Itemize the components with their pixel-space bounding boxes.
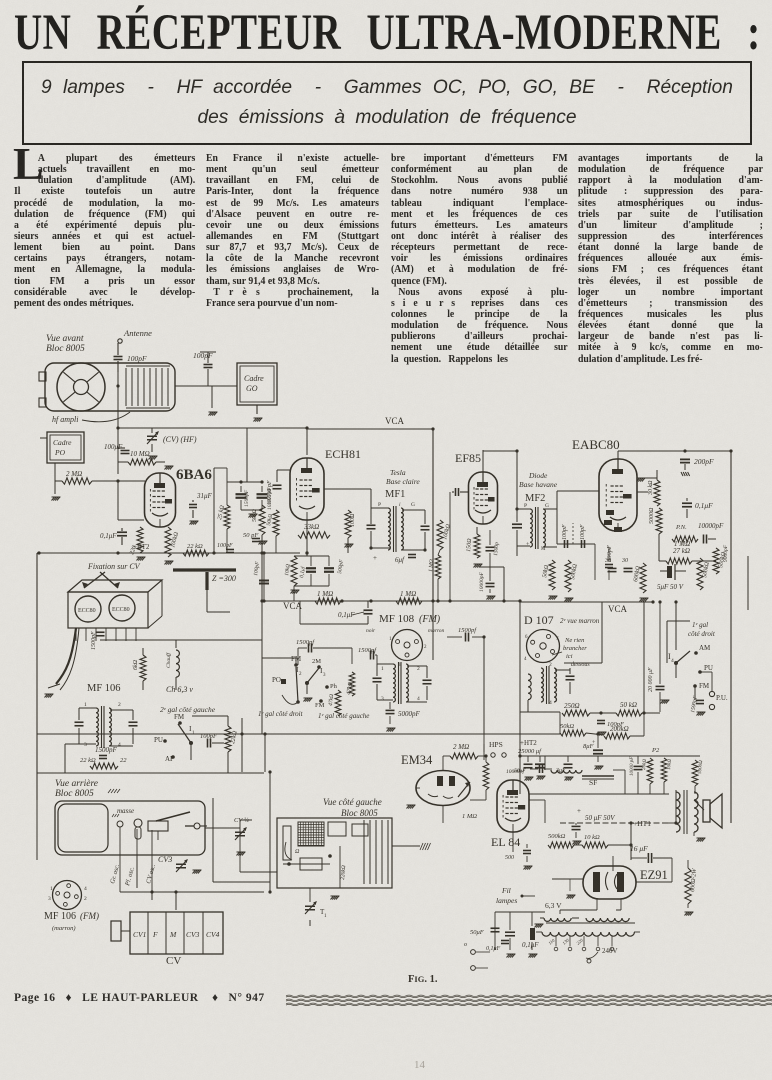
svg-text:100kΩ: 100kΩ [442, 523, 452, 541]
svg-text:6,3 V: 6,3 V [545, 901, 562, 910]
svg-text:noir: noir [366, 628, 376, 634]
svg-text:2: 2 [549, 662, 552, 668]
svg-text:100Ω: 100Ω [350, 513, 356, 527]
svg-text:(FM): (FM) [80, 911, 99, 921]
svg-text:10000 pF: 10000 pF [630, 756, 635, 776]
svg-text:100pF: 100pF [127, 354, 147, 363]
svg-text:côté droit: côté droit [688, 630, 716, 638]
svg-text:1 MΩ: 1 MΩ [400, 590, 416, 598]
svg-text:47kΩ: 47kΩ [327, 694, 335, 707]
svg-text:Fil: Fil [501, 886, 511, 895]
svg-text:100pF: 100pF [562, 524, 568, 540]
svg-text:6BA6: 6BA6 [176, 467, 212, 483]
svg-text:VCA: VCA [385, 416, 405, 426]
svg-text:22: 22 [120, 757, 127, 764]
svg-text:hf ampli: hf ampli [52, 415, 78, 424]
svg-text:Pl. osc.: Pl. osc. [124, 866, 136, 888]
svg-text:500kΩ: 500kΩ [702, 561, 711, 578]
svg-text:+: + [592, 740, 596, 746]
svg-text:5000Ω: 5000Ω [698, 760, 704, 774]
svg-text:+: + [577, 807, 581, 815]
svg-text:2ᵉ gal côté gauche: 2ᵉ gal côté gauche [160, 705, 216, 714]
svg-text:ECC80: ECC80 [78, 608, 96, 614]
svg-text:PO: PO [54, 448, 66, 457]
svg-text:0,1μf: 0,1μf [298, 565, 307, 578]
svg-text:FM: FM [699, 682, 710, 690]
svg-text:AM: AM [699, 644, 711, 652]
svg-text:50kΩ: 50kΩ [266, 514, 274, 527]
svg-text:130: 130 [561, 937, 570, 946]
svg-text:2: 2 [424, 645, 427, 650]
svg-text:1 MΩ: 1 MΩ [428, 559, 435, 572]
svg-text:1ᵉ gal côté droit: 1ᵉ gal côté droit [258, 710, 304, 718]
svg-text:+: + [373, 554, 377, 562]
svg-text:27 kΩ: 27 kΩ [673, 547, 690, 555]
svg-text:2: 2 [417, 666, 420, 672]
svg-text:+BT2: +BT2 [133, 543, 150, 551]
svg-text:FM: FM [315, 702, 325, 709]
svg-text:10.000 pF: 10.000 pF [267, 480, 273, 505]
svg-text:5μF: 5μF [657, 583, 669, 591]
svg-text:50 V: 50 V [670, 583, 684, 591]
svg-text:3: 3 [84, 742, 87, 748]
svg-text:0,1μF: 0,1μF [522, 941, 539, 949]
svg-text:5000pF: 5000pF [398, 710, 421, 718]
svg-text:Tesla: Tesla [390, 468, 406, 477]
svg-text:50 kΩ: 50 kΩ [620, 701, 637, 709]
svg-text:ici: ici [566, 653, 573, 660]
svg-text:5000Ω: 5000Ω [649, 507, 655, 524]
svg-text:GO: GO [246, 384, 258, 393]
svg-text:CV4: CV4 [206, 930, 220, 939]
svg-text:(marron): (marron) [52, 925, 76, 932]
svg-text:Bloc 8005: Bloc 8005 [341, 808, 378, 818]
svg-text:1500pF: 1500pF [91, 631, 97, 650]
svg-text:220: 220 [575, 937, 584, 946]
svg-text:200kΩ: 200kΩ [610, 725, 629, 733]
svg-text:EF85: EF85 [455, 451, 481, 465]
svg-text:CV3: CV3 [186, 930, 200, 939]
svg-text:3: 3 [48, 896, 51, 902]
svg-text:MF1: MF1 [385, 489, 405, 500]
svg-text:Gr. osc.: Gr. osc. [109, 863, 121, 885]
svg-text:3: 3 [381, 696, 384, 702]
svg-text:100pF: 100pF [580, 524, 586, 540]
svg-text:Chauff: Chauff [165, 652, 172, 668]
svg-text:F: F [152, 930, 158, 939]
svg-text:M: M [541, 547, 546, 552]
svg-text:1ᵉ gal: 1ᵉ gal [692, 621, 708, 629]
svg-text:PO: PO [272, 676, 281, 684]
svg-text:500kΩ: 500kΩ [570, 563, 579, 580]
svg-text:EL 84: EL 84 [491, 835, 520, 849]
svg-text:Cadre: Cadre [53, 438, 72, 447]
svg-text:22kΩ: 22kΩ [230, 730, 239, 745]
svg-text:FM: FM [174, 713, 185, 721]
svg-text:6μf: 6μf [395, 556, 405, 564]
svg-text:D 107: D 107 [524, 613, 554, 627]
svg-text:240V: 240V [602, 947, 618, 955]
svg-text:Bloc 8005: Bloc 8005 [55, 789, 94, 799]
svg-text:−: − [660, 559, 664, 565]
svg-text:1: 1 [381, 666, 384, 672]
svg-text:50μF: 50μF [470, 929, 485, 936]
svg-text:4: 4 [118, 742, 121, 748]
svg-text:MF 106: MF 106 [87, 683, 121, 694]
svg-text:4: 4 [549, 700, 552, 706]
svg-text:+: + [526, 542, 530, 548]
svg-text:10 MΩ: 10 MΩ [130, 450, 150, 458]
svg-text:1: 1 [84, 702, 87, 708]
svg-text:MF 106: MF 106 [44, 911, 76, 922]
svg-text:2 MΩ: 2 MΩ [66, 470, 82, 478]
svg-text:1500pF: 1500pF [244, 489, 250, 507]
svg-text:2: 2 [299, 672, 302, 677]
svg-text:Base havane: Base havane [519, 480, 558, 489]
svg-text:1 MΩ: 1 MΩ [462, 813, 477, 820]
svg-text:250Ω: 250Ω [564, 702, 580, 710]
svg-text:P: P [378, 502, 381, 508]
svg-text:4: 4 [671, 658, 674, 664]
svg-text:1500pF: 1500pF [95, 746, 118, 754]
svg-text:100kΩ: 100kΩ [170, 531, 180, 549]
svg-text:33kΩ: 33kΩ [303, 523, 319, 531]
svg-text:150Ω: 150Ω [466, 538, 473, 552]
svg-text:10000pF: 10000pF [479, 572, 485, 593]
svg-text:22 kΩ: 22 kΩ [187, 543, 203, 550]
svg-text:1: 1 [324, 914, 327, 919]
svg-text:(CV) (HF): (CV) (HF) [163, 435, 197, 444]
svg-text:Cadre: Cadre [244, 374, 264, 383]
svg-text:marron: marron [428, 628, 445, 634]
svg-text:Fixation sur CV: Fixation sur CV [87, 562, 141, 571]
svg-text:20kΩ: 20kΩ [642, 759, 648, 771]
svg-text:200pF: 200pF [694, 457, 714, 466]
svg-text:50kΩ: 50kΩ [542, 564, 550, 578]
svg-text:P.N.: P.N. [675, 524, 687, 531]
svg-text:CV osc.: CV osc. [145, 863, 157, 885]
svg-text:4: 4 [84, 886, 87, 892]
svg-text:P2: P2 [651, 747, 660, 754]
svg-text:Ch 6,3 v: Ch 6,3 v [166, 685, 193, 694]
svg-text:Z =300: Z =300 [212, 574, 236, 583]
svg-text:1ᵉ gal côté gauche: 1ᵉ gal côté gauche [318, 712, 369, 720]
svg-text:10000pF: 10000pF [698, 522, 724, 530]
svg-text:0,1μF: 0,1μF [695, 501, 713, 510]
svg-text:i: i [399, 502, 401, 508]
svg-text:300pF: 300pF [606, 544, 613, 563]
svg-text:CV3: CV3 [158, 855, 172, 864]
svg-text:HPS: HPS [489, 740, 503, 749]
svg-text:2M: 2M [312, 658, 321, 665]
svg-text:100pF: 100pF [217, 543, 233, 549]
svg-text:1500pf: 1500pf [296, 639, 315, 646]
svg-text:(?): (?) [540, 805, 541, 806]
svg-text:100pF: 100pF [253, 561, 261, 577]
svg-text:EABC80: EABC80 [572, 437, 620, 452]
svg-text:lampes: lampes [496, 896, 517, 905]
svg-text:masse: masse [117, 807, 134, 815]
svg-text:0,1μF: 0,1μF [486, 946, 501, 952]
svg-text:Ω: Ω [295, 849, 300, 855]
svg-text:0,1μF: 0,1μF [100, 532, 117, 540]
svg-text:brancher: brancher [563, 645, 587, 652]
svg-text:500kΩ: 500kΩ [548, 833, 566, 840]
svg-text:ECC80: ECC80 [112, 607, 130, 613]
svg-text:Vue côté gauche: Vue côté gauche [323, 797, 382, 807]
svg-text:4: 4 [524, 657, 527, 662]
svg-text:PU: PU [154, 736, 163, 744]
svg-text:30 kΩ: 30 kΩ [648, 480, 654, 496]
svg-text:20 000 μF: 20 000 μF [648, 667, 654, 692]
svg-text:ECH81: ECH81 [325, 447, 361, 461]
svg-text:Diode: Diode [528, 471, 548, 480]
svg-text:1: 1 [50, 886, 53, 892]
svg-text:1 MΩ: 1 MΩ [317, 590, 333, 598]
svg-text:EM34: EM34 [401, 753, 433, 767]
svg-text:16 μF: 16 μF [630, 844, 648, 853]
svg-text:50 pF: 50 pF [243, 532, 259, 539]
svg-text:FIG. 1.: FIG. 1. [408, 974, 438, 985]
svg-text:CV1: CV1 [133, 930, 146, 939]
svg-text:14: 14 [414, 1059, 426, 1071]
svg-text:MF2: MF2 [525, 493, 545, 504]
svg-text:+HT2: +HT2 [520, 739, 537, 747]
svg-text:G: G [411, 502, 415, 508]
svg-text:P: P [524, 503, 527, 509]
svg-text:50kΩ: 50kΩ [560, 723, 574, 730]
svg-text:2 MΩ: 2 MΩ [453, 743, 469, 751]
svg-text:50μF: 50μF [514, 768, 526, 774]
svg-text:CV: CV [166, 955, 181, 967]
svg-text:1500p: 1500p [493, 542, 500, 556]
svg-text:30: 30 [621, 558, 628, 564]
svg-text:600Ω-2W: 600Ω-2W [690, 867, 698, 892]
svg-text:6kΩ: 6kΩ [133, 659, 139, 670]
svg-text:500: 500 [505, 855, 514, 861]
svg-text:31μF: 31μF [196, 492, 213, 500]
svg-text:(FM): (FM) [419, 614, 441, 625]
svg-text:P.U.: P.U. [716, 694, 728, 702]
svg-text:EZ91: EZ91 [640, 868, 668, 882]
svg-text:100μF: 100μF [104, 443, 123, 451]
svg-text:500pF: 500pF [337, 559, 345, 575]
svg-text:10kΩ: 10kΩ [667, 759, 673, 771]
svg-text:110: 110 [547, 937, 556, 945]
svg-text:2ᵉ vue marron: 2ᵉ vue marron [560, 617, 600, 625]
svg-text:2: 2 [118, 702, 121, 708]
svg-text:1500pf: 1500pf [358, 647, 377, 654]
svg-text:25000 μf: 25000 μf [518, 748, 542, 755]
svg-text:10kΩ: 10kΩ [284, 564, 292, 577]
svg-text:VCA: VCA [608, 604, 628, 614]
svg-text:Bloc 8005: Bloc 8005 [46, 344, 85, 354]
svg-text:50 μF 50V: 50 μF 50V [585, 814, 615, 822]
svg-text:Ne rien: Ne rien [564, 637, 584, 644]
svg-text:Vue arrière: Vue arrière [55, 779, 98, 789]
svg-text:3: 3 [323, 673, 326, 678]
svg-text:Ph: Ph [330, 683, 338, 690]
svg-text:220kΩ: 220kΩ [340, 865, 347, 880]
svg-text:Base claire: Base claire [386, 477, 420, 486]
svg-text:o: o [464, 942, 467, 948]
svg-text:M: M [169, 930, 177, 939]
svg-text:1500pf: 1500pf [458, 627, 477, 634]
svg-text:MF 108: MF 108 [379, 613, 415, 625]
svg-text:4: 4 [417, 696, 420, 702]
svg-text:10 kΩ: 10 kΩ [584, 834, 600, 841]
svg-text:2: 2 [84, 896, 87, 902]
svg-text:22 kΩ: 22 kΩ [80, 757, 96, 764]
svg-text:PU: PU [704, 664, 713, 672]
svg-text:G: G [545, 503, 549, 509]
svg-text:Vue avant: Vue avant [46, 334, 84, 344]
svg-text:Antenne: Antenne [123, 328, 152, 338]
svg-text:50kΩ: 50kΩ [252, 508, 258, 522]
